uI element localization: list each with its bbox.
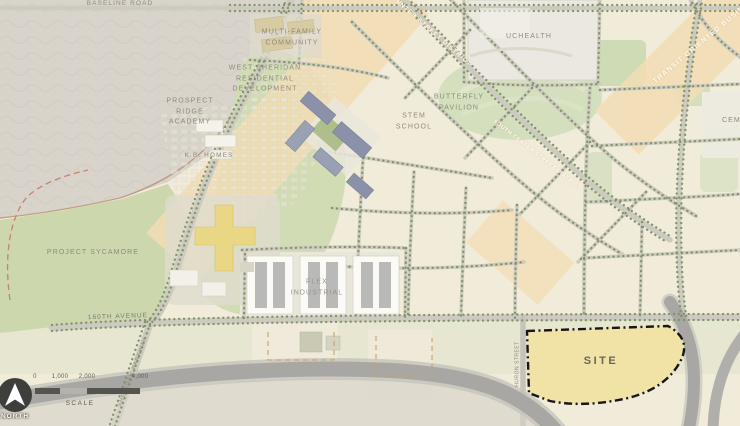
flex-industrial-buildings bbox=[247, 256, 399, 314]
master-plan-map: BASELINE ROAD MULTI-FAMILY COMMUNITY WES… bbox=[0, 0, 740, 426]
scale-segment-1 bbox=[35, 388, 60, 394]
scale-bar: 0 1,000 2,000 4,000 SCALE bbox=[30, 374, 160, 416]
cemetery-block bbox=[702, 92, 740, 158]
scale-tick-0: 0 bbox=[33, 374, 37, 380]
scale-tick-1000: 1,000 bbox=[52, 374, 69, 380]
scale-segment-2 bbox=[60, 388, 87, 394]
multi-family-buildings bbox=[250, 14, 322, 58]
scale-tick-2000: 2,000 bbox=[79, 374, 96, 380]
scale-bar-caption: SCALE bbox=[66, 400, 95, 407]
map-artwork bbox=[0, 0, 740, 426]
north-arrow-label: NORTH bbox=[1, 413, 29, 420]
scale-segment-3 bbox=[87, 388, 140, 394]
north-arrow-icon bbox=[0, 378, 32, 412]
scale-tick-4000: 4,000 bbox=[132, 374, 149, 380]
